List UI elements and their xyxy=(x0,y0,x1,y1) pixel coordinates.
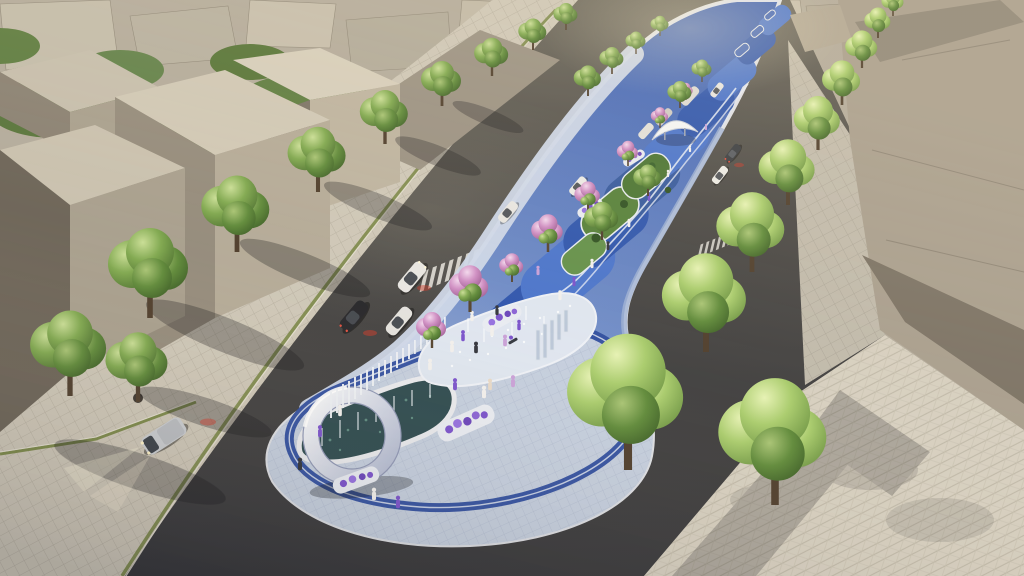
scene-linear-park-render xyxy=(0,0,1024,576)
warm-light-wash xyxy=(0,0,1024,576)
